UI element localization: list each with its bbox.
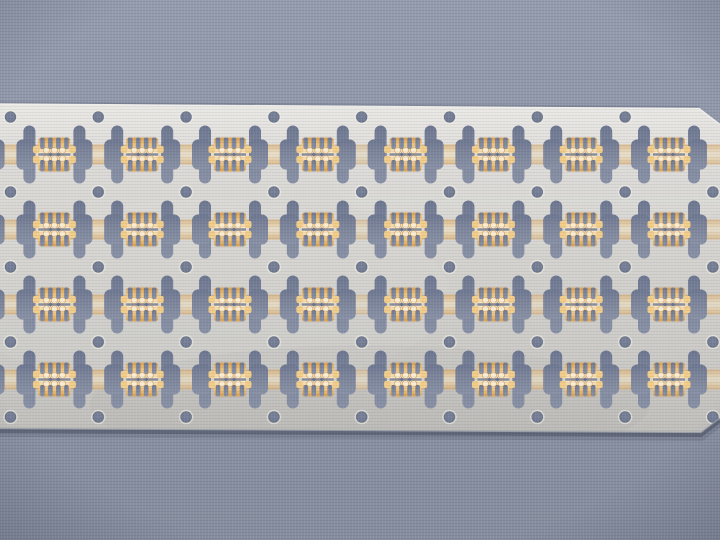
photo-canvas xyxy=(0,0,720,540)
leadframe-photo xyxy=(0,0,720,540)
vignette xyxy=(0,0,720,540)
